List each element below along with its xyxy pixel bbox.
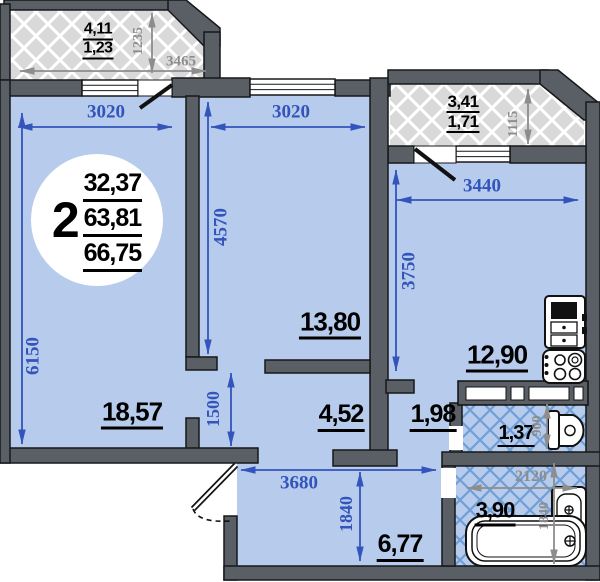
living-depth-dim-label: 6150 xyxy=(24,337,43,375)
corridor-width-dim-label: 1500 xyxy=(204,391,222,427)
floor-plan-drawing xyxy=(0,0,600,582)
room-count: 2 xyxy=(52,191,78,249)
bedroom-window xyxy=(250,79,335,95)
corridor-area-label: 4,52 xyxy=(318,402,365,432)
living-area-total: 32,37 xyxy=(83,169,143,202)
bedroom-depth-dim-label: 4570 xyxy=(212,208,231,246)
loggia-left-depth-dim-label: 1235 xyxy=(132,27,146,55)
loggia-right-area-full-label: 3,41 xyxy=(446,93,479,113)
loggia-right-depth-dim-label: 1115 xyxy=(507,111,521,137)
wc-width-dim-label: 900 xyxy=(531,416,545,437)
total-area: 66,75 xyxy=(83,239,143,272)
bathroom-area-label: 3,90 xyxy=(475,500,516,527)
bedroom-area-label: 13,80 xyxy=(299,309,361,340)
kitchen-window xyxy=(456,146,510,162)
kitchen-area-label: 12,90 xyxy=(466,342,528,373)
floor-plan: 2 32,37 63,81 66,75 18,57 13,80 12,90 4,… xyxy=(0,0,600,582)
hallway-depth-dim-label: 1840 xyxy=(337,496,355,532)
stove-icon xyxy=(543,350,585,383)
bathroom-doorway xyxy=(441,468,456,498)
loggia-right-area-counted-label: 1,71 xyxy=(446,113,479,133)
bathroom-depth-dim-label: 1840 xyxy=(538,502,552,530)
kitchen-depth-dim-label: 3750 xyxy=(400,252,419,290)
bathroom-width-dim-label: 2120 xyxy=(515,469,547,485)
entrance-door-leaf-core xyxy=(193,465,236,509)
loggia-left-area-full-label: 4,11 xyxy=(83,22,113,41)
hallway-width-dim-label: 3680 xyxy=(280,474,318,493)
loggia-left-width-dim-label: 3465 xyxy=(166,55,196,70)
hallway-area-label: 6,77 xyxy=(377,532,424,562)
wardrobe xyxy=(458,381,588,405)
living-window xyxy=(82,80,138,96)
loggia-left-area-counted-label: 1,23 xyxy=(82,41,113,60)
passage-area-label: 1,98 xyxy=(410,402,457,432)
usable-area-total: 63,81 xyxy=(83,204,143,237)
wc-area-label: 1,37 xyxy=(498,423,535,447)
kitchen-sink-icon xyxy=(545,296,587,348)
living-width-dim-label: 3020 xyxy=(87,103,125,122)
kitchen-width-dim-label: 3440 xyxy=(463,177,501,196)
bedroom-width-dim-label: 3020 xyxy=(272,103,310,122)
living-room-area-label: 18,57 xyxy=(101,399,163,430)
apartment-summary-badge: 2 32,37 63,81 66,75 xyxy=(31,154,163,286)
